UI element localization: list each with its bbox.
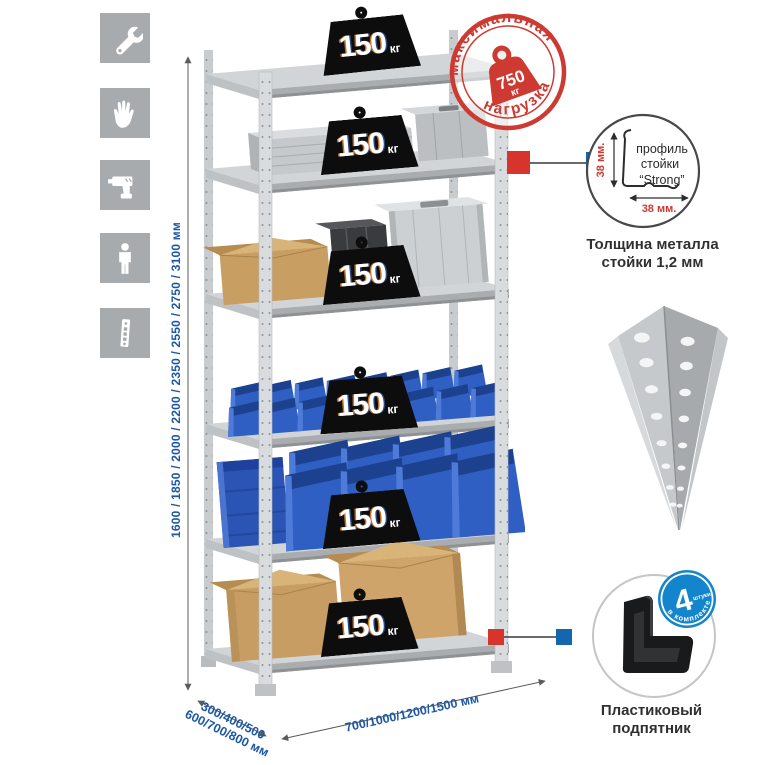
count-badge: 4 штуки в комплекте bbox=[656, 568, 718, 630]
perforated-post-icon bbox=[100, 308, 150, 358]
svg-text:стойки: стойки bbox=[641, 157, 679, 171]
shelf-load-badge-4: 150кг bbox=[316, 363, 418, 436]
product-infographic: 150кг 150кг 150кг 150кг 150кг 150кг макс… bbox=[0, 0, 765, 765]
svg-text:38 мм.: 38 мм. bbox=[642, 203, 677, 215]
profile-caption: Толщина металла стойки 1,2 мм bbox=[585, 236, 720, 273]
weight-ring bbox=[355, 480, 368, 493]
drill-icon bbox=[100, 160, 150, 210]
height-dimension-label: 1600 / 1850 / 2000 / 2200 / 2350 / 2550 … bbox=[169, 222, 183, 538]
person-icon bbox=[100, 233, 150, 283]
weight-ring bbox=[353, 106, 366, 119]
svg-text:“Strong”: “Strong” bbox=[639, 173, 684, 187]
shelf-load-badge-1: 150кг bbox=[317, 1, 421, 77]
gloves-icon bbox=[100, 88, 150, 138]
weight-ring bbox=[355, 236, 368, 249]
shelf-load-badge-2: 150кг bbox=[315, 102, 418, 176]
post-profile-detail: 38 мм. 38 мм. профиль стойки “Strong” bbox=[584, 112, 702, 230]
svg-text:38 мм.: 38 мм. bbox=[595, 143, 607, 178]
shelf-load-badge-6: 150кг bbox=[315, 584, 418, 658]
shelf-load-badge-3: 150кг bbox=[317, 232, 420, 306]
shelf-load-badge-5: 150кг bbox=[317, 476, 420, 550]
weight-ring bbox=[353, 588, 366, 601]
max-load-stamp: максимальная нагрузка 750 кг bbox=[438, 6, 578, 138]
foot-caption: Пластиковый подпятник bbox=[584, 702, 719, 739]
weight-ring bbox=[354, 366, 367, 379]
corner-post-image bbox=[600, 298, 750, 543]
svg-text:профиль: профиль bbox=[636, 142, 688, 156]
wrench-icon bbox=[100, 13, 150, 63]
weight-ring bbox=[355, 6, 368, 19]
